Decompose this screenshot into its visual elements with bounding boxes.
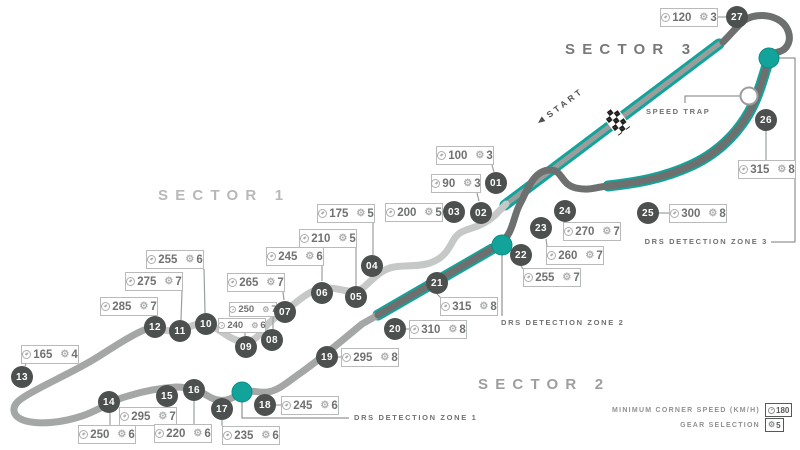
corner-03-speed-gear-box: 2005 [385, 203, 443, 222]
corner-speed-value: 255 [158, 254, 177, 266]
corner-08-marker: 08 [261, 329, 283, 351]
corner-speed-value: 255 [535, 272, 554, 284]
corner-03-marker: 03 [443, 201, 465, 223]
corner-gear-value: 8 [719, 208, 725, 220]
gear-icon [185, 255, 194, 265]
corner-gear-value: 5 [367, 208, 373, 220]
corner-01-leader-line [492, 165, 494, 172]
legend-gear-value: 5 [776, 421, 780, 430]
gear-icon [708, 209, 717, 219]
speedometer-icon [101, 302, 110, 311]
corner-speed-value: 90 [442, 178, 455, 190]
corner-speed-value: 235 [234, 430, 253, 442]
corner-speed-value: 100 [448, 150, 467, 162]
corner-21-marker: 21 [426, 272, 448, 294]
corner-gear-value: 6 [331, 400, 337, 412]
corner-gear-value: 8 [459, 324, 465, 336]
speedometer-icon [768, 407, 775, 414]
corner-17-speed-gear-box: 2356 [222, 426, 280, 445]
corner-14-marker: 14 [98, 391, 120, 413]
speedometer-icon [22, 350, 31, 359]
corner-26-marker: 26 [755, 109, 777, 131]
corner-gear-value: 8 [391, 352, 397, 364]
gear-icon [305, 252, 314, 262]
sector-2-label: SECTOR 2 [478, 376, 610, 393]
corner-07-speed-gear-box: 2657 [227, 273, 285, 292]
corner-gear-value: 3 [486, 150, 492, 162]
corner-gear-value: 3 [710, 12, 716, 24]
speed-trap-connector [685, 96, 747, 103]
speedometer-icon [155, 429, 164, 438]
gear-icon [193, 429, 202, 439]
corner-speed-value: 250 [238, 304, 254, 315]
speedometer-icon [524, 273, 533, 282]
corner-20-marker: 20 [384, 318, 406, 340]
corner-17-marker: 17 [211, 398, 233, 420]
speedometer-icon [431, 179, 440, 188]
gear-icon [117, 430, 126, 440]
corner-speed-value: 200 [397, 207, 416, 219]
corner-11-leader-line [181, 291, 182, 320]
corner-24-speed-gear-box: 2707 [563, 222, 621, 241]
speedometer-icon [670, 209, 679, 218]
corner-gear-value: 7 [613, 226, 619, 238]
corner-12-marker: 12 [144, 316, 166, 338]
drs-detection-zone-2-label: DRS DETECTION ZONE 2 [501, 318, 624, 327]
corner-24-marker: 24 [554, 200, 576, 222]
corner-10-marker: 10 [195, 313, 217, 335]
corner-speed-value: 300 [681, 208, 700, 220]
corner-02-marker: 02 [470, 202, 492, 224]
speedometer-icon [661, 13, 670, 22]
gear-icon [266, 278, 275, 288]
corner-02-leader-line [477, 193, 479, 201]
speed-trap-label: SPEED TRAP [646, 107, 710, 116]
speedometer-icon [218, 322, 225, 329]
corner-speed-value: 220 [166, 428, 185, 440]
corner-gear-value: 7 [150, 301, 156, 313]
gear-icon [768, 421, 775, 429]
corner-speed-value: 315 [452, 301, 471, 313]
corner-22-speed-gear-box: 2557 [523, 268, 581, 287]
corner-25-marker: 25 [637, 202, 659, 224]
corner-10-leader-line [204, 269, 205, 313]
corner-09-marker: 09 [235, 336, 257, 358]
gear-icon [777, 165, 786, 175]
corner-speed-value: 295 [353, 352, 372, 364]
speedometer-icon [79, 430, 88, 439]
drs-detection-1-marker [232, 382, 252, 402]
corner-gear-value: 5 [349, 233, 355, 245]
speedometer-icon [739, 165, 748, 174]
drs3-connector [771, 58, 795, 242]
corner-16-marker: 16 [183, 379, 205, 401]
corner-gear-value: 7 [169, 411, 175, 423]
gear-icon [158, 412, 167, 422]
corner-06-speed-gear-box: 2456 [266, 247, 324, 266]
legend-gear-selection: GEAR SELECTION 5 [560, 418, 784, 432]
speedometer-icon [300, 234, 309, 243]
gear-icon [699, 13, 708, 23]
corner-gear-value: 6 [260, 320, 265, 331]
sector-3-label: SECTOR 3 [565, 41, 697, 58]
gear-icon [448, 325, 457, 335]
corner-27-marker: 27 [726, 6, 748, 28]
corner-speed-value: 260 [558, 250, 577, 262]
speedometer-icon [564, 227, 573, 236]
drs-detection-zone-1-label: DRS DETECTION ZONE 1 [354, 413, 477, 422]
gear-icon [338, 234, 347, 244]
corner-05-marker: 05 [345, 286, 367, 308]
corner-speed-value: 175 [329, 208, 348, 220]
corner-gear-value: 7 [573, 272, 579, 284]
corner-18-marker: 18 [254, 394, 276, 416]
track-map-svg [0, 0, 800, 450]
speedometer-icon [120, 412, 129, 421]
speedometer-icon [267, 252, 276, 261]
legend-speed-box: 180 [765, 403, 792, 417]
corner-gear-value: 5 [435, 207, 441, 219]
gear-icon [139, 302, 148, 312]
gear-icon [251, 322, 258, 330]
corner-11-marker: 11 [169, 320, 191, 342]
gear-icon [380, 353, 389, 363]
speed-trap-marker [741, 88, 758, 105]
speedometer-icon [229, 306, 236, 313]
corner-19-marker: 19 [316, 346, 338, 368]
corner-18-speed-gear-box: 2456 [281, 396, 339, 415]
corner-speed-value: 245 [278, 251, 297, 263]
corner-02-speed-gear-box: 903 [431, 174, 481, 193]
corner-gear-value: 6 [204, 428, 210, 440]
legend-speed-value: 180 [776, 406, 789, 415]
corner-21-speed-gear-box: 3158 [440, 297, 498, 316]
corner-speed-value: 240 [227, 320, 243, 331]
speedometer-icon [228, 278, 237, 287]
speedometer-icon [342, 353, 351, 362]
corner-speed-value: 270 [575, 226, 594, 238]
corner-07-leader-line [283, 292, 284, 300]
drs-detection-3-marker [759, 48, 779, 68]
corner-speed-value: 265 [239, 277, 258, 289]
corner-speed-value: 315 [750, 164, 769, 176]
corner-gear-value: 7 [596, 250, 602, 262]
corner-speed-value: 120 [672, 12, 691, 24]
corner-23-speed-gear-box: 2607 [546, 246, 604, 265]
corner-speed-value: 285 [112, 301, 131, 313]
corner-gear-value: 6 [316, 251, 322, 263]
corner-19-speed-gear-box: 2958 [341, 348, 399, 367]
legend-speed-label: MINIMUM CORNER SPEED (KM/H) [560, 407, 760, 414]
corner-speed-value: 250 [90, 429, 109, 441]
gear-icon [562, 273, 571, 283]
corner-10-speed-gear-box: 2556 [146, 250, 204, 269]
corner-01-marker: 01 [485, 172, 507, 194]
corner-04-speed-gear-box: 1755 [317, 204, 375, 223]
corner-23-leader-line [546, 239, 547, 246]
corner-09-speed-gear-box: 2406 [218, 318, 266, 333]
corner-16-speed-gear-box: 2206 [154, 424, 212, 443]
corner-25-speed-gear-box: 3008 [669, 204, 727, 223]
gear-icon [262, 306, 269, 314]
corner-27-speed-gear-box: 1203 [660, 8, 718, 27]
speedometer-icon [147, 255, 156, 264]
sector-1-label: SECTOR 1 [158, 187, 290, 204]
gear-icon [164, 277, 173, 287]
legend-gear-box: 5 [765, 418, 784, 432]
corner-06-marker: 06 [311, 282, 333, 304]
corner-gear-value: 6 [272, 430, 278, 442]
corner-gear-value: 8 [788, 164, 794, 176]
corner-speed-value: 210 [311, 233, 330, 245]
corner-11-speed-gear-box: 2757 [125, 272, 183, 291]
speedometer-icon [441, 302, 450, 311]
corner-04-marker: 04 [361, 255, 383, 277]
corner-08-speed-gear-box: 2507 [229, 302, 277, 317]
speedometer-icon [386, 208, 395, 217]
gear-icon [356, 209, 365, 219]
gear-icon [463, 179, 472, 189]
corner-gear-value: 6 [128, 429, 134, 441]
gear-icon [424, 208, 433, 218]
drs-detection-zone-3-label: DRS DETECTION ZONE 3 [600, 237, 768, 246]
corner-20-speed-gear-box: 3108 [409, 320, 467, 339]
corner-13-speed-gear-box: 1654 [21, 345, 79, 364]
corner-14-speed-gear-box: 2506 [78, 425, 136, 444]
legend-minimum-corner-speed: MINIMUM CORNER SPEED (KM/H) 180 [560, 403, 792, 417]
legend-gear-label: GEAR SELECTION [560, 422, 760, 429]
corner-gear-value: 6 [196, 254, 202, 266]
gear-icon [585, 251, 594, 261]
speedometer-icon [282, 401, 291, 410]
speedometer-icon [318, 209, 327, 218]
speedometer-icon [437, 151, 446, 160]
speedometer-icon [126, 277, 135, 286]
corner-gear-value: 3 [474, 178, 480, 190]
gear-icon [60, 350, 69, 360]
corner-speed-value: 275 [137, 276, 156, 288]
corner-speed-value: 295 [131, 411, 150, 423]
corner-gear-value: 8 [490, 301, 496, 313]
corner-speed-value: 310 [421, 324, 440, 336]
speedometer-icon [547, 251, 556, 260]
corner-07-marker: 07 [274, 301, 296, 323]
corner-speed-value: 165 [33, 349, 52, 361]
corner-26-speed-gear-box: 3158 [738, 160, 796, 179]
corner-gear-value: 7 [175, 276, 181, 288]
gear-icon [475, 151, 484, 161]
corner-05-speed-gear-box: 2105 [299, 229, 357, 248]
track-map: START SECTOR 1 SECTOR 2 SECTOR 3 SPEED T… [0, 0, 800, 450]
drs-detection-2-marker [492, 235, 512, 255]
corner-13-marker: 13 [11, 366, 33, 388]
gear-icon [479, 302, 488, 312]
corner-speed-value: 245 [293, 400, 312, 412]
track-sector3-path [378, 16, 789, 315]
corner-gear-value: 7 [277, 277, 283, 289]
corner-15-marker: 15 [156, 385, 178, 407]
gear-icon [602, 227, 611, 237]
corner-23-marker: 23 [530, 217, 552, 239]
corner-12-speed-gear-box: 2857 [100, 297, 158, 316]
speedometer-icon [410, 325, 419, 334]
corner-22-marker: 22 [510, 244, 532, 266]
corner-01-speed-gear-box: 1003 [436, 146, 494, 165]
gear-icon [261, 431, 270, 441]
corner-gear-value: 4 [71, 349, 77, 361]
speedometer-icon [223, 431, 232, 440]
gear-icon [320, 401, 329, 411]
